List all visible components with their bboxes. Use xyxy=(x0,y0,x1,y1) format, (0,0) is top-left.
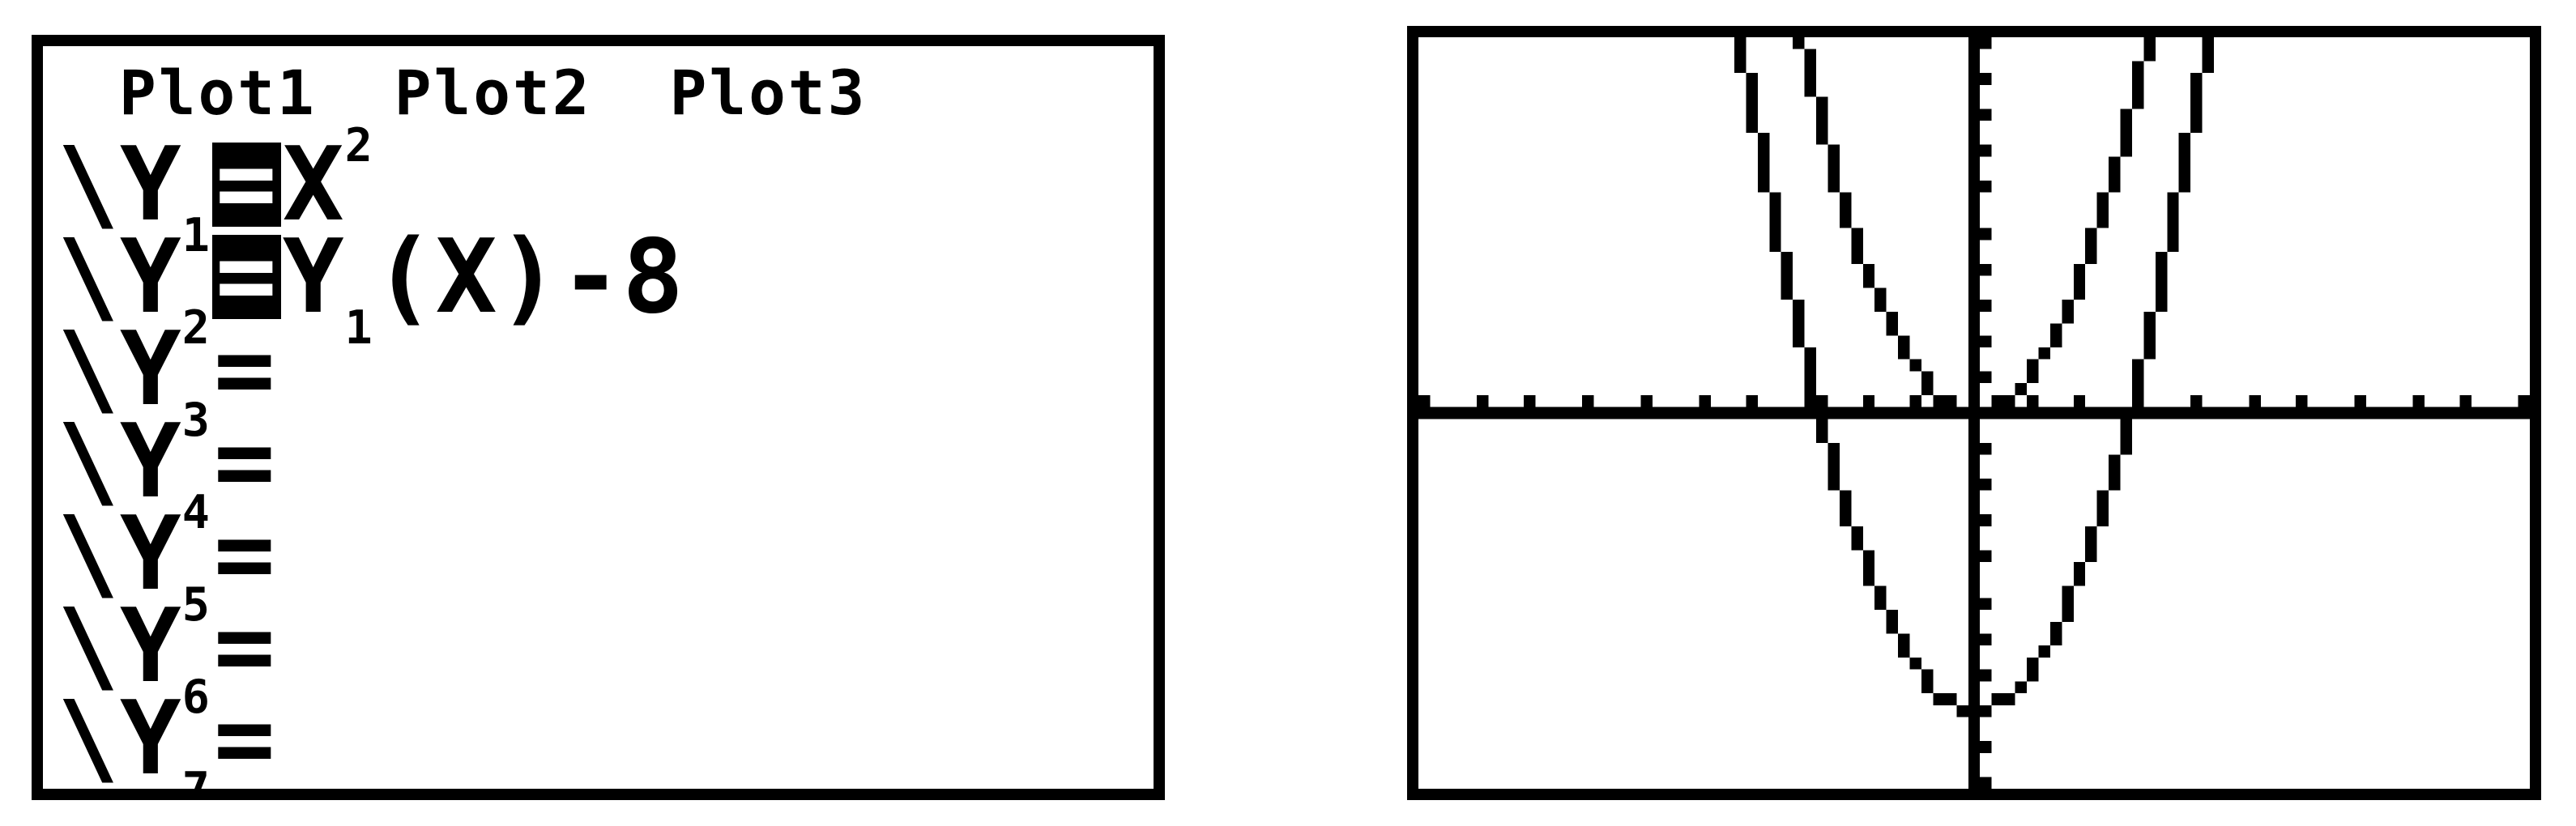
expression-y2[interactable]: Y1(X)-8 xyxy=(283,231,685,323)
subscript-digit: 4 xyxy=(182,486,211,539)
tab-plot2[interactable]: Plot2 xyxy=(395,57,592,129)
equals-toggle-y7[interactable]: = xyxy=(211,692,279,785)
function-list: \Y1=X2\Y2=Y1(X)-8\Y3=\Y4=\Y5=\Y6=\Y7= xyxy=(43,138,1154,785)
subscript-digit: 3 xyxy=(182,394,211,447)
superscript-digit: 2 xyxy=(345,119,373,172)
subscript-digit: 7 xyxy=(182,763,211,800)
subscript-digit: 5 xyxy=(182,578,211,632)
subscript-digit: 1 xyxy=(182,209,211,262)
equals-toggle-y1-selected[interactable]: = xyxy=(212,143,281,227)
calculator-figure: Plot1 Plot2 Plot3 \Y1=X2\Y2=Y1(X)-8\Y3=\… xyxy=(0,0,2576,826)
tab-plot1[interactable]: Plot1 xyxy=(119,57,317,129)
graph-plot xyxy=(1418,37,2530,789)
tab-plot3[interactable]: Plot3 xyxy=(670,57,868,129)
graph-screen xyxy=(1407,26,2541,800)
equals-toggle-y2-selected[interactable]: = xyxy=(212,235,281,319)
subscript-digit: 1 xyxy=(345,301,373,355)
plot-tabs-row: Plot1 Plot2 Plot3 xyxy=(43,46,1154,138)
subscript-digit: 2 xyxy=(182,301,211,355)
y-equals-editor-screen: Plot1 Plot2 Plot3 \Y1=X2\Y2=Y1(X)-8\Y3=\… xyxy=(32,35,1165,800)
line-style-icon[interactable]: \ xyxy=(58,692,120,785)
subscript-digit: 6 xyxy=(182,671,211,724)
